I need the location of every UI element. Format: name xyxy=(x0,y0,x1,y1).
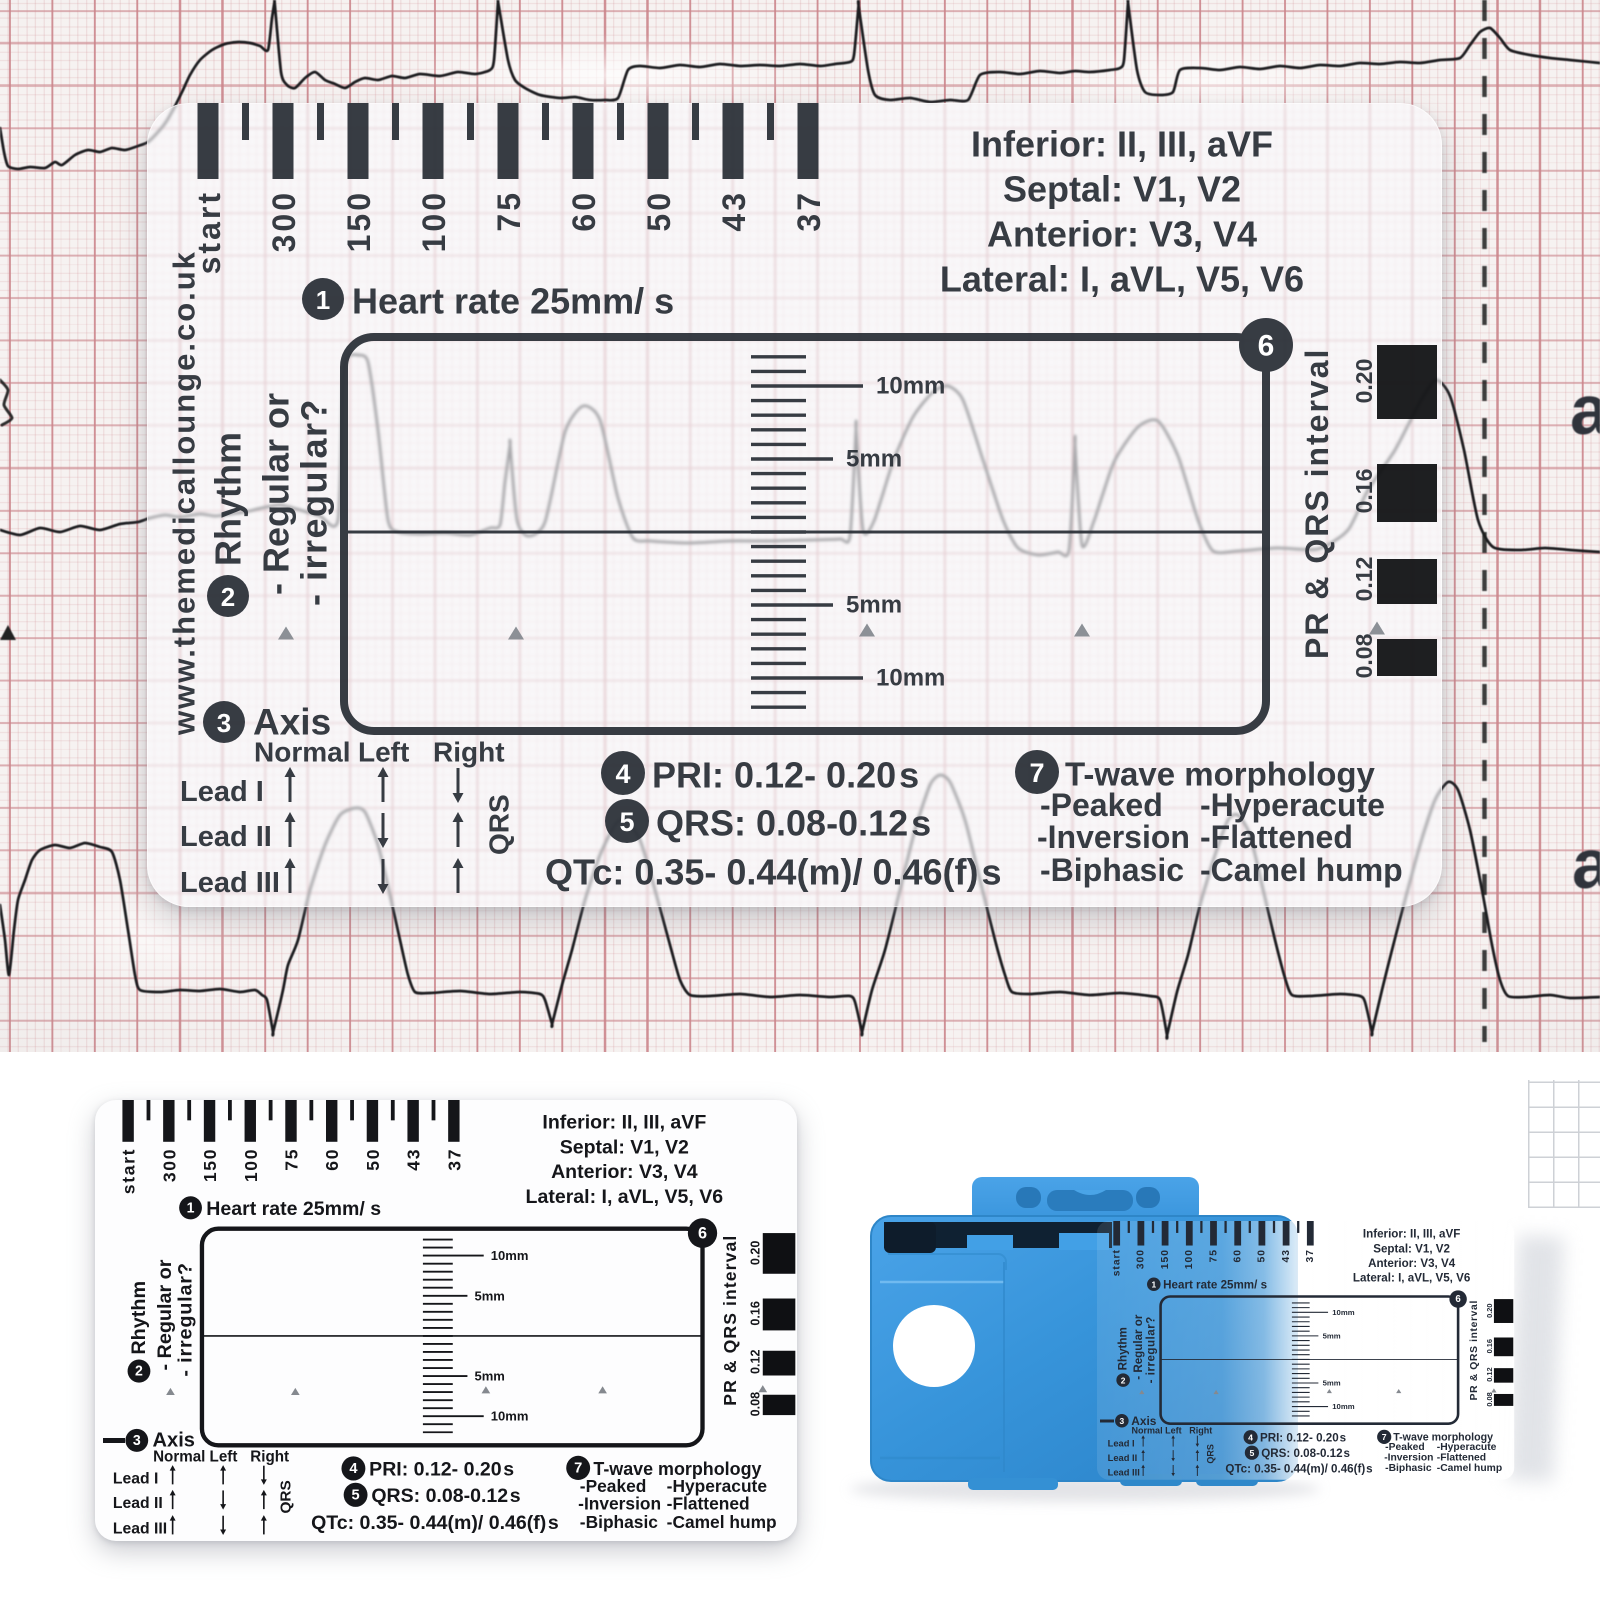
svg-text:www.themedicallounge.co.uk: www.themedicallounge.co.uk xyxy=(167,250,202,736)
